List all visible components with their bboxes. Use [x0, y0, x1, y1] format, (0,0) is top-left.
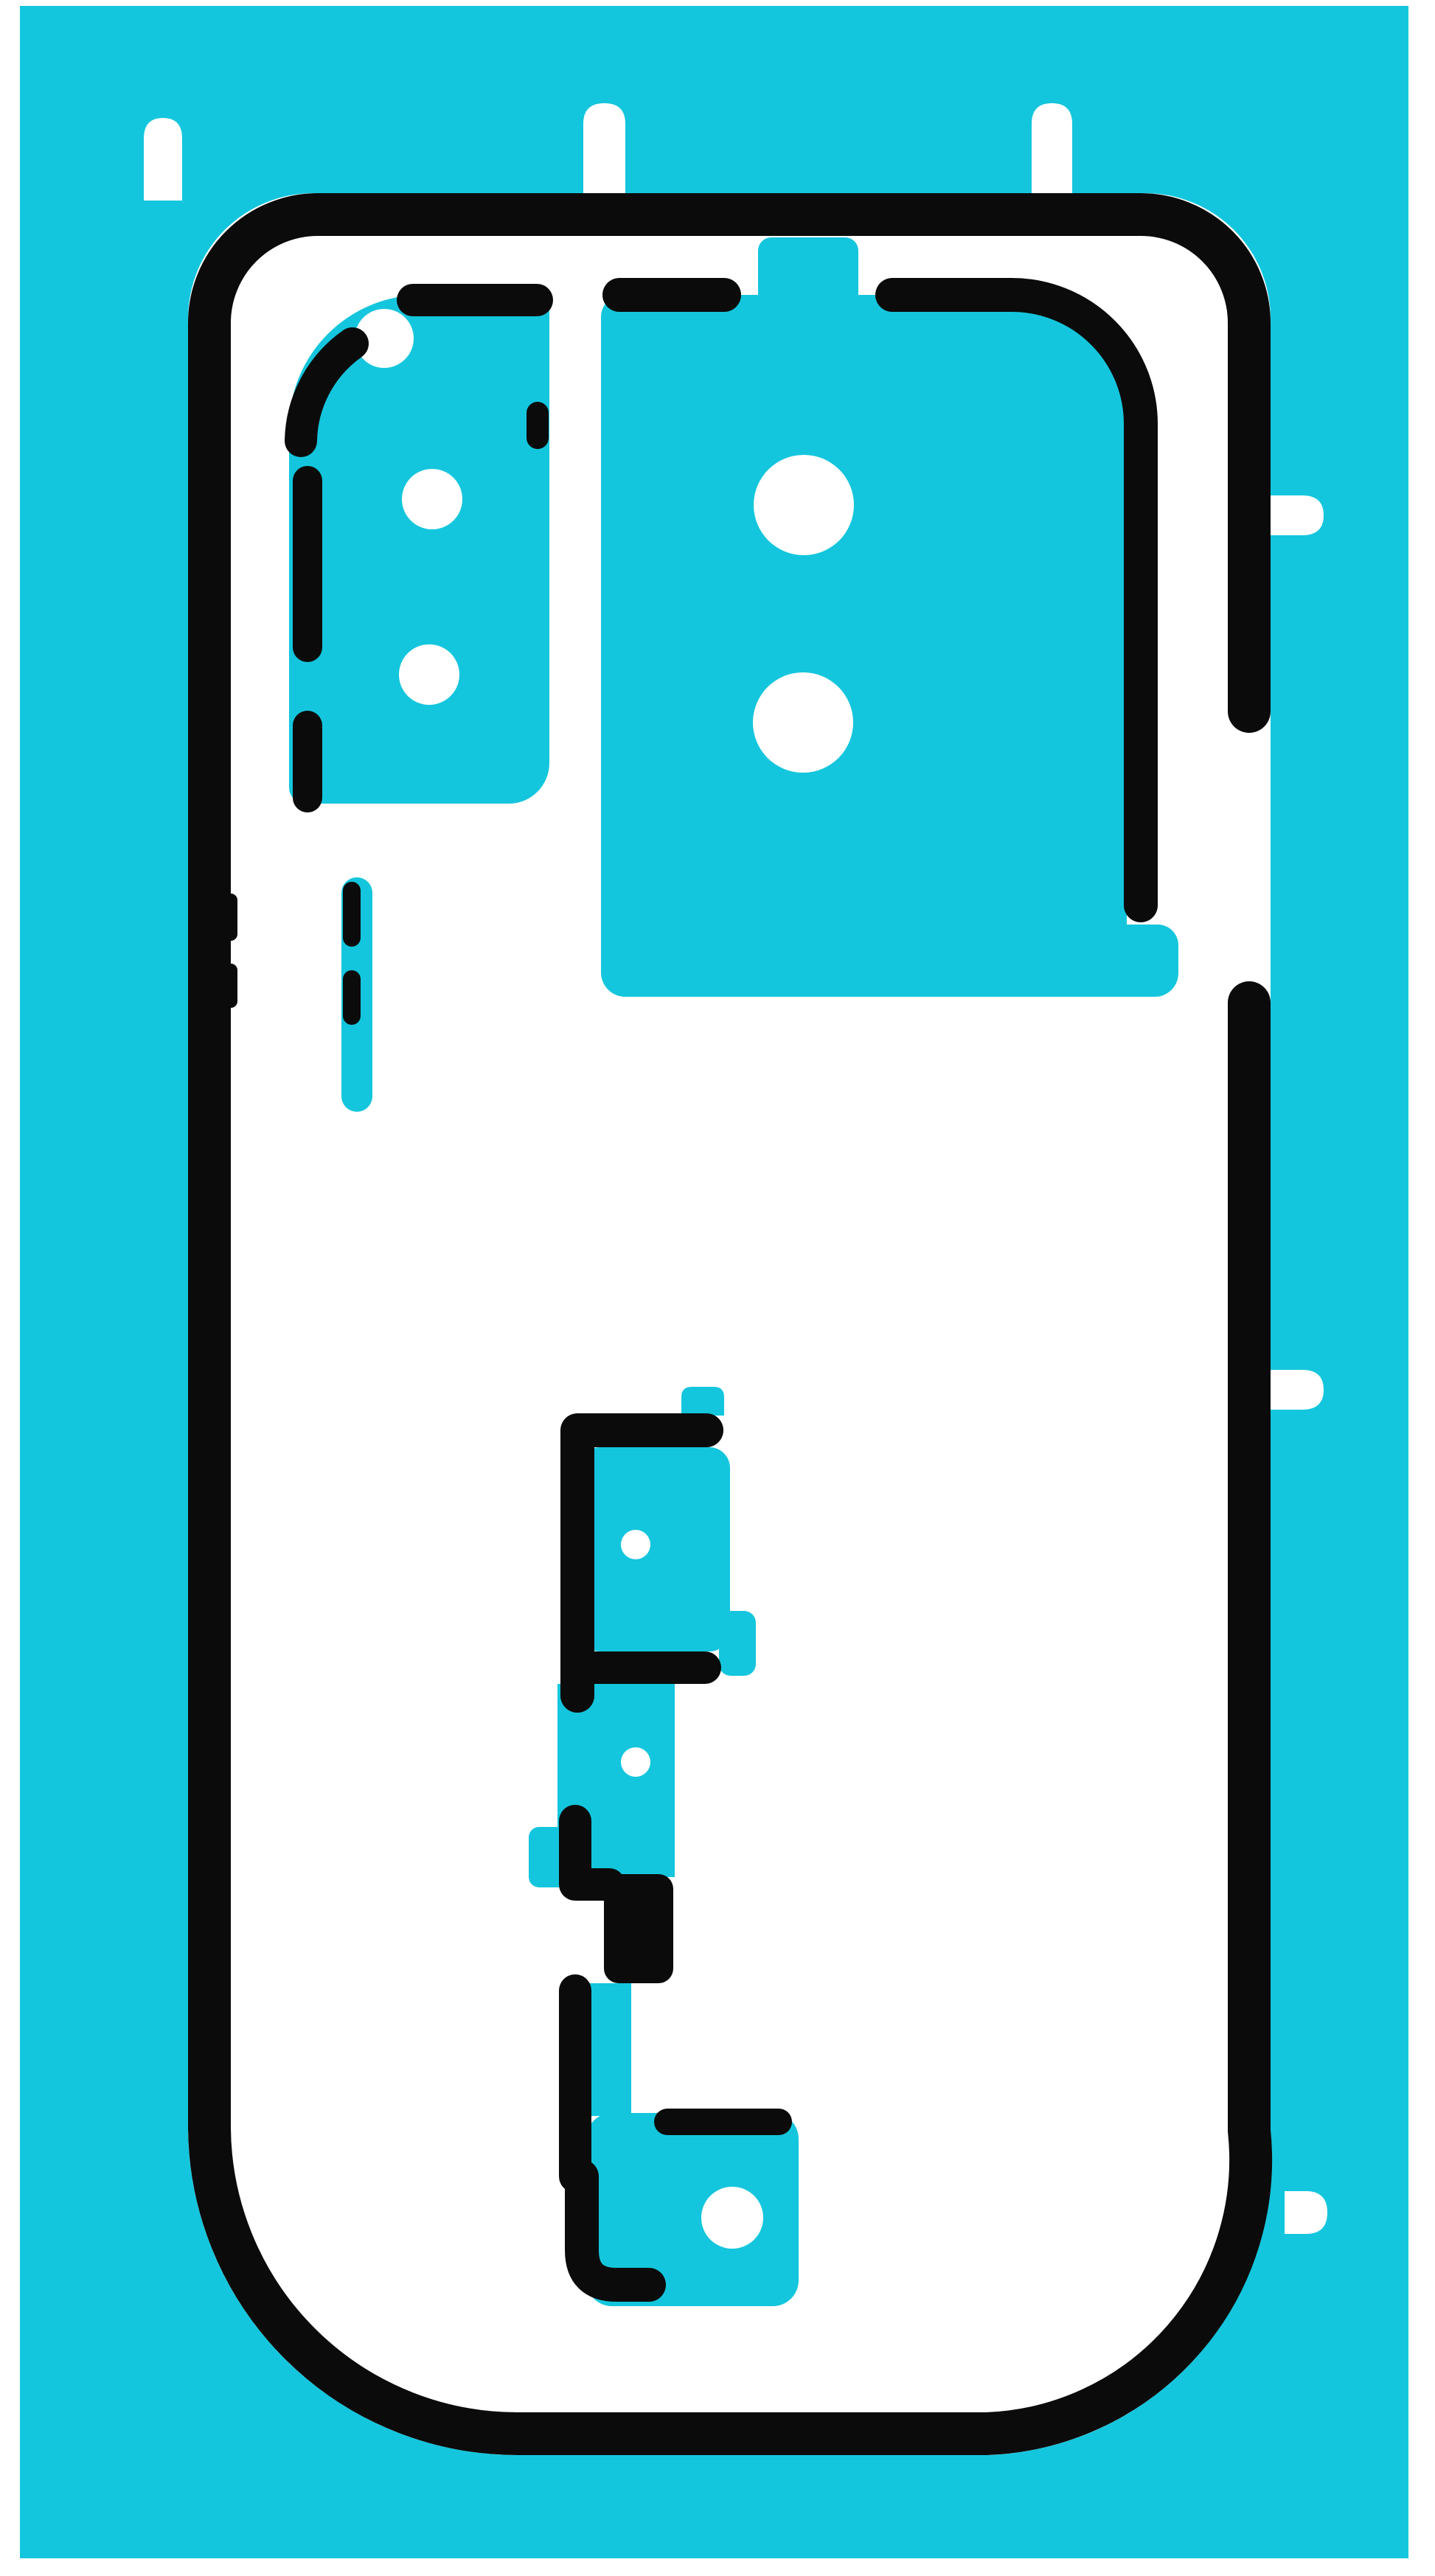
main-patch-lens-hole-2 [753, 672, 853, 773]
left-patch-lens-hole-2 [399, 644, 459, 705]
lower-patch-right-step [719, 1611, 756, 1676]
right-pull-tab-1 [1268, 495, 1324, 535]
top-pull-tab-1 [144, 118, 182, 201]
left-patch-lens-hole-1 [402, 469, 462, 529]
main-camera-patch [601, 237, 1178, 997]
left-edge-notch-mark-2 [221, 964, 237, 1008]
lower-patch-hole-2 [621, 1747, 650, 1777]
main-patch-lens-hole-1 [754, 455, 854, 555]
top-pull-tab-3 [1032, 103, 1072, 195]
right-pull-tab-3 [1285, 2191, 1327, 2234]
top-pull-tab-2 [583, 103, 625, 195]
lower-patch-top-tab [681, 1387, 724, 1416]
right-pull-tab-2 [1268, 1370, 1324, 1410]
lower-patch-solid-block [604, 1874, 673, 1983]
lower-patch-upper-block [580, 1447, 730, 1651]
lower-patch-hole-3 [701, 2187, 763, 2249]
left-edge-notch-mark-1 [221, 894, 237, 941]
product-photo [0, 0, 1435, 2576]
lower-patch-hole-1 [621, 1530, 650, 1559]
adhesive-sheet-image [0, 0, 1435, 2576]
